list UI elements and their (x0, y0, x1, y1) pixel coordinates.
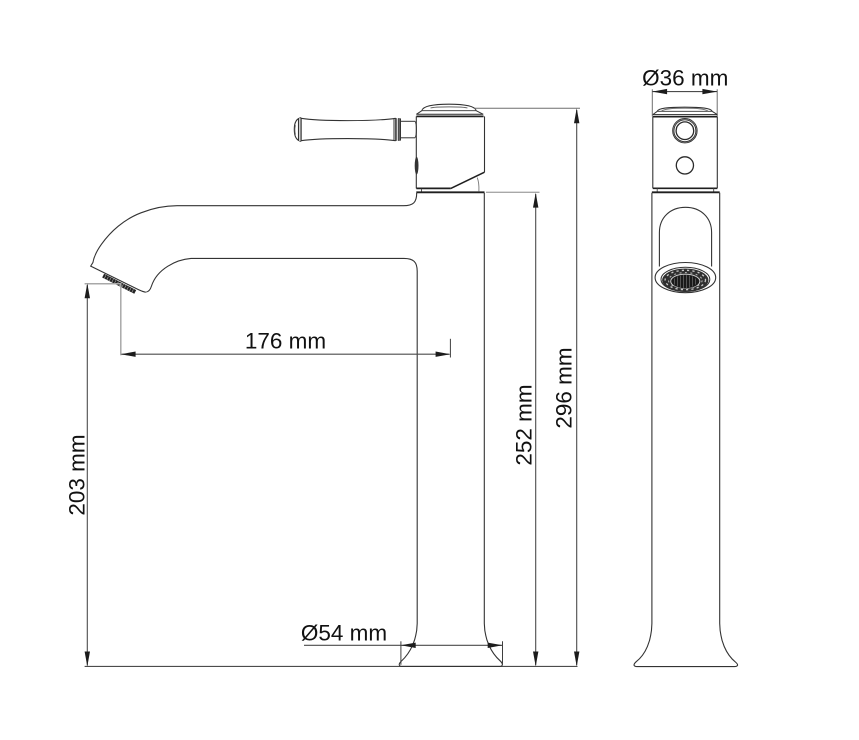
svg-text:Ø54 mm: Ø54 mm (301, 621, 387, 646)
svg-text:Ø36 mm: Ø36 mm (642, 65, 728, 90)
svg-text:252 mm: 252 mm (512, 384, 537, 465)
svg-text:203 mm: 203 mm (65, 434, 90, 515)
svg-text:296 mm: 296 mm (552, 347, 577, 428)
svg-text:176 mm: 176 mm (245, 329, 326, 354)
